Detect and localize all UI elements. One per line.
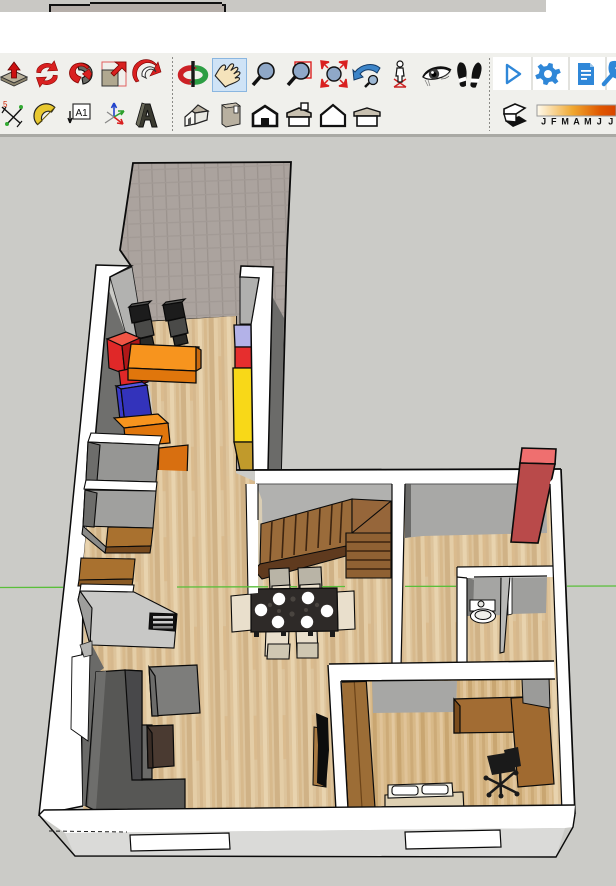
svg-text:A1: A1 (76, 108, 89, 119)
svg-text:J: J (597, 117, 602, 127)
svg-text:M: M (584, 117, 592, 127)
svg-text:5: 5 (3, 100, 8, 109)
svg-text:M: M (561, 117, 569, 127)
svg-text:J: J (608, 117, 613, 127)
svg-text:A: A (573, 117, 580, 127)
svg-text:J: J (541, 117, 546, 127)
svg-text:F: F (551, 117, 557, 127)
